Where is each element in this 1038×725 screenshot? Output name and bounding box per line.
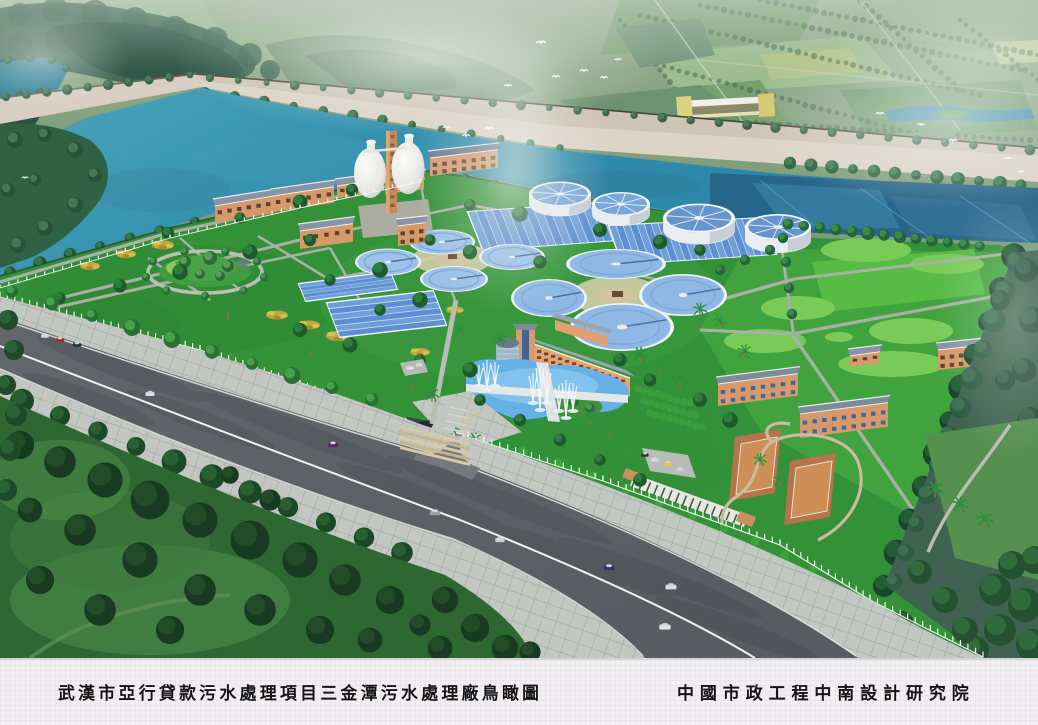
svg-text:中國市政工程中南設計研究院: 中國市政工程中南設計研究院 — [677, 683, 975, 703]
svg-text:武漢市亞行貸款污水處理項目三金潭污水處理廠鳥瞰圖: 武漢市亞行貸款污水處理項目三金潭污水處理廠鳥瞰圖 — [58, 683, 542, 703]
